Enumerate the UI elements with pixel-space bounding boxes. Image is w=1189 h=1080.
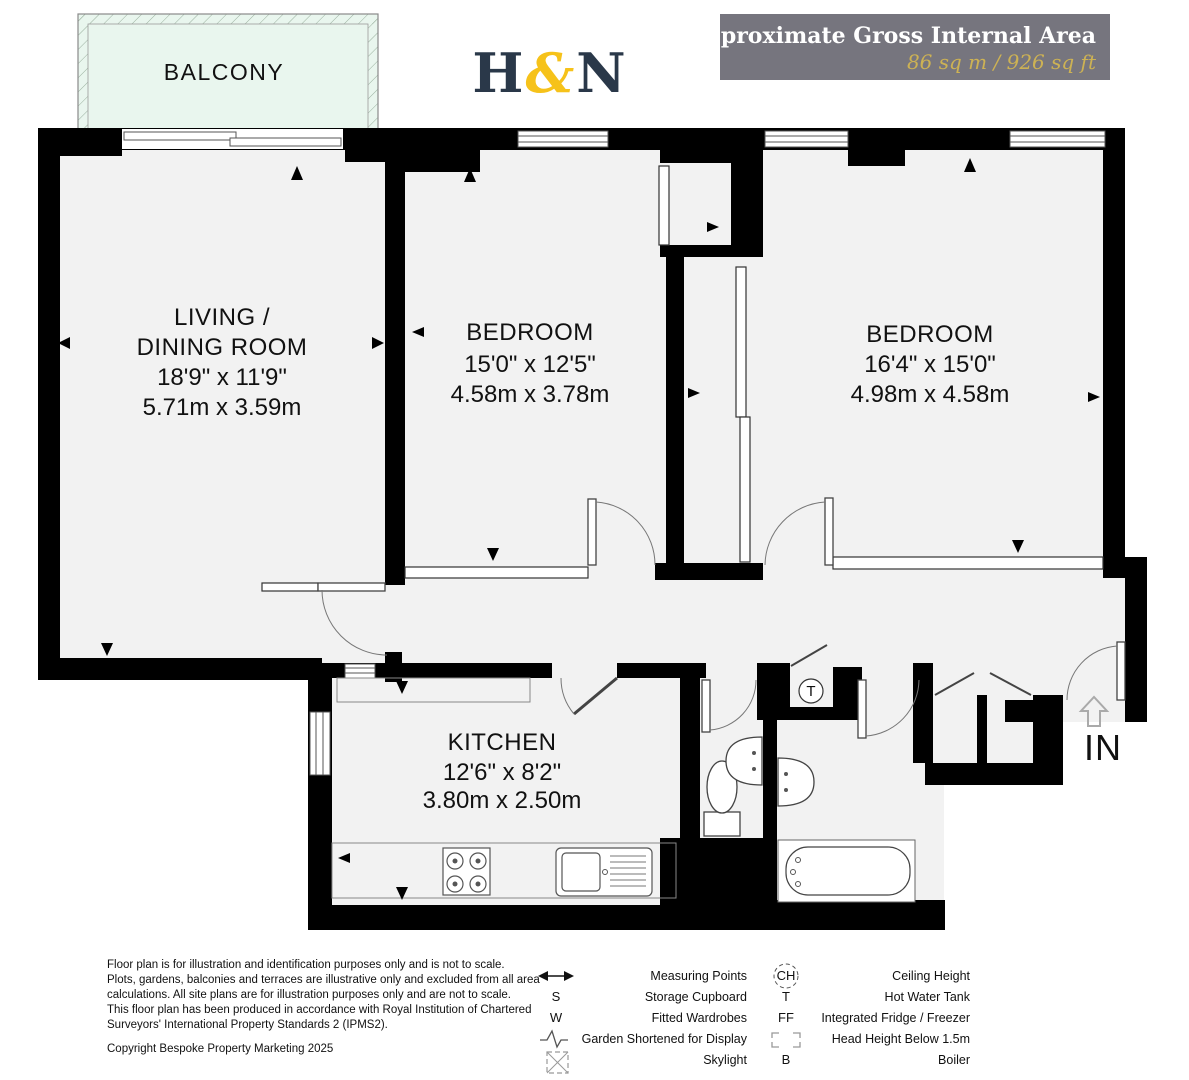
svg-text:Plots, gardens, balconies and: Plots, gardens, balconies and terraces a… — [107, 974, 540, 986]
svg-text:KITCHEN: KITCHEN — [448, 729, 557, 756]
area-box-value: 86 sq m / 926 sq ft — [907, 50, 1097, 74]
legend-item: W Fitted Wardrobes — [550, 1010, 747, 1025]
svg-text:4.58m x 3.78m: 4.58m x 3.78m — [451, 381, 610, 408]
svg-text:16'4" x 15'0": 16'4" x 15'0" — [864, 351, 996, 378]
svg-text:S: S — [552, 989, 561, 1004]
balcony: BALCONY — [78, 14, 378, 130]
window-bedroom2-right-icon — [1010, 131, 1105, 147]
svg-text:Boiler: Boiler — [938, 1053, 970, 1067]
legend-right: CH Ceiling Height T Hot Water Tank FF In… — [772, 964, 971, 1067]
svg-text:15'0" x 12'5": 15'0" x 12'5" — [464, 351, 596, 378]
floorplan-canvas: BALCONY — [0, 0, 1189, 1080]
legend-item: S Storage Cupboard — [552, 989, 747, 1004]
measuring-points-icon — [538, 971, 574, 981]
svg-text:T: T — [782, 989, 790, 1004]
bedroom1-label: BEDROOM 15'0" x 12'5" 4.58m x 3.78m — [451, 319, 610, 408]
hot-water-tank-icon: T — [799, 679, 823, 703]
tank-label: T — [806, 683, 815, 700]
wardrobe-icon — [736, 267, 746, 417]
copyright: Copyright Bespoke Property Marketing 202… — [107, 1043, 333, 1055]
svg-text:Floor plan is for illustration: Floor plan is for illustration and ident… — [107, 959, 505, 971]
window-bedroom2-left-icon — [765, 131, 848, 147]
svg-text:Fitted Wardrobes: Fitted Wardrobes — [652, 1011, 747, 1025]
svg-text:CH: CH — [777, 968, 796, 983]
brand-logo: H&N — [472, 41, 627, 105]
svg-text:Measuring Points: Measuring Points — [650, 969, 747, 983]
svg-text:Surveyors' International Prope: Surveyors' International Property Standa… — [107, 1019, 388, 1031]
window-bedroom1-icon — [518, 131, 608, 147]
svg-text:3.80m x 2.50m: 3.80m x 2.50m — [423, 787, 582, 814]
legend-item: CH Ceiling Height — [774, 964, 971, 988]
legend-item: T Hot Water Tank — [782, 989, 971, 1004]
hob-icon — [443, 848, 490, 895]
legend-item: Garden Shortened for Display — [540, 1031, 748, 1047]
svg-text:Head Height Below 1.5m: Head Height Below 1.5m — [832, 1032, 970, 1046]
wardrobe-icon — [659, 166, 669, 245]
legend-item: Skylight — [547, 1052, 748, 1073]
svg-text:BEDROOM: BEDROOM — [466, 319, 594, 346]
legend-left: Measuring Points S Storage Cupboard W Fi… — [538, 969, 748, 1073]
window-living-icon — [122, 129, 343, 149]
header: H&N Approximate Gross Internal Area 86 s… — [472, 14, 1110, 105]
area-box: Approximate Gross Internal Area 86 sq m … — [687, 14, 1110, 80]
bathtub-icon — [778, 840, 915, 902]
svg-text:4.98m x 4.58m: 4.98m x 4.58m — [851, 381, 1010, 408]
svg-text:18'9" x 11'9": 18'9" x 11'9" — [157, 364, 287, 391]
skylight-icon — [547, 1052, 568, 1073]
floorplan-page: BALCONY — [0, 0, 1189, 1080]
svg-text:calculations. All site plans: calculations. All site plans are for ill… — [107, 989, 511, 1001]
svg-text:Ceiling Height: Ceiling Height — [892, 969, 970, 983]
svg-text:Skylight: Skylight — [703, 1053, 747, 1067]
legend-item: Measuring Points — [538, 969, 747, 983]
svg-text:FF: FF — [778, 1010, 794, 1025]
svg-text:Storage Cupboard: Storage Cupboard — [645, 990, 747, 1004]
legend-item: B Boiler — [782, 1052, 970, 1067]
svg-text:LIVING /: LIVING / — [174, 304, 270, 331]
legend-item: FF Integrated Fridge / Freezer — [778, 1010, 970, 1025]
storage-cupboard-icon — [345, 664, 375, 678]
head-height-icon — [772, 1033, 800, 1047]
svg-text:DINING ROOM: DINING ROOM — [137, 334, 308, 361]
svg-text:Integrated Fridge / Freezer: Integrated Fridge / Freezer — [821, 1011, 970, 1025]
svg-text:W: W — [550, 1010, 563, 1025]
svg-text:Garden Shortened for Display: Garden Shortened for Display — [582, 1032, 748, 1046]
sink-icon — [556, 848, 652, 896]
window-kitchen-icon — [310, 712, 330, 775]
svg-text:5.71m x 3.59m: 5.71m x 3.59m — [143, 394, 302, 421]
svg-text:BEDROOM: BEDROOM — [866, 321, 994, 348]
garden-shortened-icon — [540, 1031, 568, 1047]
bedroom2-label: BEDROOM 16'4" x 15'0" 4.98m x 4.58m — [851, 321, 1010, 408]
svg-text:12'6" x 8'2": 12'6" x 8'2" — [443, 759, 561, 786]
balcony-label: BALCONY — [164, 59, 284, 85]
svg-text:This floor plan has been produ: This floor plan has been produced in acc… — [107, 1004, 531, 1016]
svg-text:B: B — [782, 1052, 791, 1067]
area-box-title: Approximate Gross Internal Area — [687, 23, 1096, 49]
svg-text:Hot Water Tank: Hot Water Tank — [885, 990, 971, 1004]
entrance-label: IN — [1084, 727, 1122, 768]
wardrobe-icon — [740, 417, 750, 562]
disclaimer: Floor plan is for illustration and ident… — [107, 959, 540, 1055]
legend-item: Head Height Below 1.5m — [772, 1032, 970, 1047]
